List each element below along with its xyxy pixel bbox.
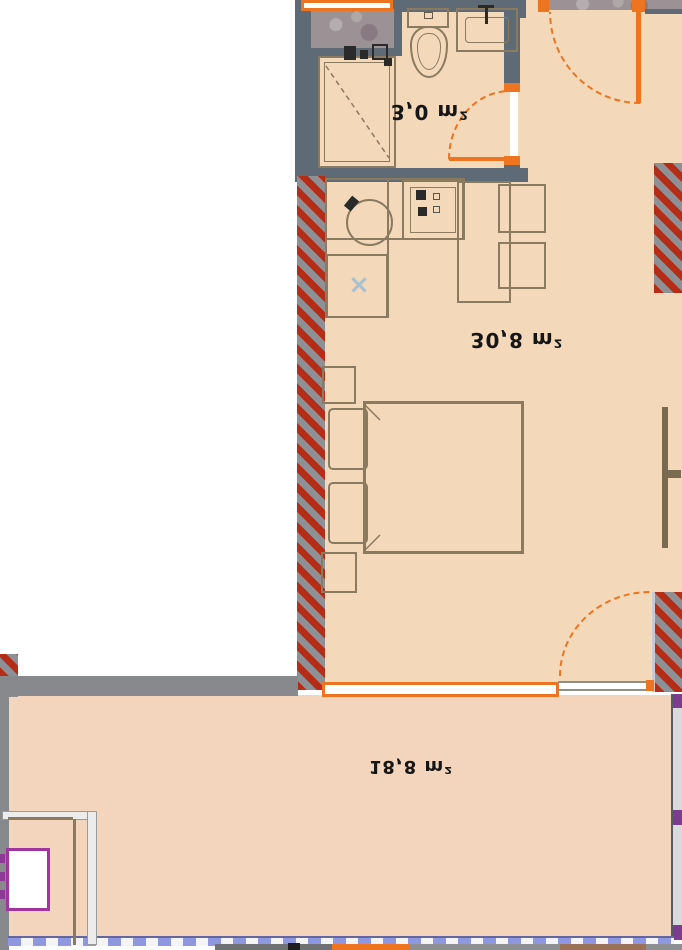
shower-tray	[318, 56, 396, 168]
railing-post-bottom	[673, 925, 682, 940]
closet-inner-line-v	[73, 819, 76, 945]
bottom-fragment-wall-2	[410, 944, 560, 950]
railing-post-mid	[673, 810, 682, 825]
nightstand-bottom	[321, 552, 357, 593]
hatched-right-wall-lower	[652, 592, 682, 692]
balcony-area-label: 18,8 m²	[362, 756, 460, 777]
toilet-flush-button	[424, 12, 433, 19]
hatched-right-wall-upper	[654, 163, 682, 293]
balcony-door-jamb	[646, 680, 654, 691]
floor-plan: × 3,0 m² 30,8 m² 18,8 m²	[0, 0, 682, 950]
living-room-window	[322, 682, 559, 697]
pillow-2	[328, 482, 368, 544]
bathroom-door-jamb-top	[504, 83, 520, 92]
bottom-fragment-tick	[288, 943, 300, 950]
entry-wall-stub	[518, 0, 526, 18]
hatched-left-wall	[297, 176, 325, 690]
utility-dash-2	[0, 872, 5, 881]
cabinet-x-icon: ×	[342, 270, 376, 304]
entrance-door-leaf	[636, 10, 641, 103]
shower-mixer-3	[384, 58, 392, 66]
wall-stone-inset	[311, 9, 394, 48]
shower-tray-inner	[324, 62, 390, 162]
tv-bracket	[668, 470, 681, 478]
stove-burner-3	[433, 193, 440, 200]
toilet-bowl-inner	[417, 33, 441, 70]
balcony-floor	[8, 695, 674, 938]
stove-burner-4	[433, 206, 440, 213]
balcony-door-sill	[558, 681, 652, 691]
bottom-fragment-window	[332, 944, 410, 950]
entry-door-jamb-left	[538, 0, 549, 12]
nightstand-top	[322, 366, 356, 404]
bottom-fragment-stone	[560, 944, 646, 950]
stove	[402, 180, 464, 240]
bottom-fragment-wall-1	[215, 944, 340, 950]
dining-table	[457, 181, 511, 303]
bottom-fragment-wall-3	[646, 944, 682, 950]
utility-box	[6, 848, 50, 911]
kitchen-cabinet: ×	[326, 254, 388, 318]
closet-inner-line-h	[8, 817, 73, 820]
living-room-area-label: 30,8 m²	[464, 328, 570, 352]
utility-dash-3	[0, 890, 5, 899]
bathroom-window	[301, 0, 393, 11]
entry-sill-line	[645, 9, 682, 14]
bathroom-door-jamb-bottom	[504, 156, 520, 165]
shower-mixer-1	[344, 46, 356, 60]
washbasin-tap-stem	[485, 5, 488, 24]
balcony-top-wall	[0, 676, 298, 696]
bathroom-area-label: 3,0 m²	[386, 100, 474, 124]
utility-dash-1	[0, 854, 5, 863]
shower-mixer-2	[360, 50, 368, 59]
railing-post-top	[673, 694, 682, 708]
stove-burner-2	[418, 207, 427, 216]
stove-burner-1	[416, 190, 426, 200]
pillow-1	[328, 408, 368, 470]
bathroom-door-leaf	[449, 157, 508, 161]
closet-wall-vertical	[87, 811, 97, 945]
bed	[363, 401, 524, 554]
